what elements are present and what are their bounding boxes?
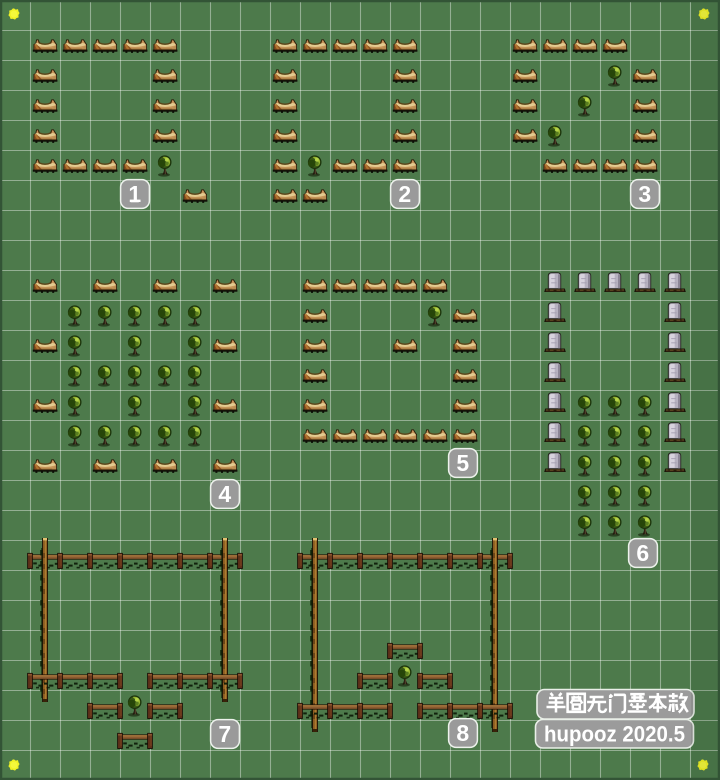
svg-text:7: 7 [218,721,231,747]
svg-text:1: 1 [128,181,141,207]
svg-text:3: 3 [638,181,651,207]
svg-text:5: 5 [456,450,469,476]
svg-text:6: 6 [636,540,649,566]
svg-text:4: 4 [218,481,231,507]
svg-text:hupooz 2020.5: hupooz 2020.5 [544,722,685,747]
svg-text:2: 2 [398,181,411,207]
svg-text:8: 8 [456,720,469,746]
